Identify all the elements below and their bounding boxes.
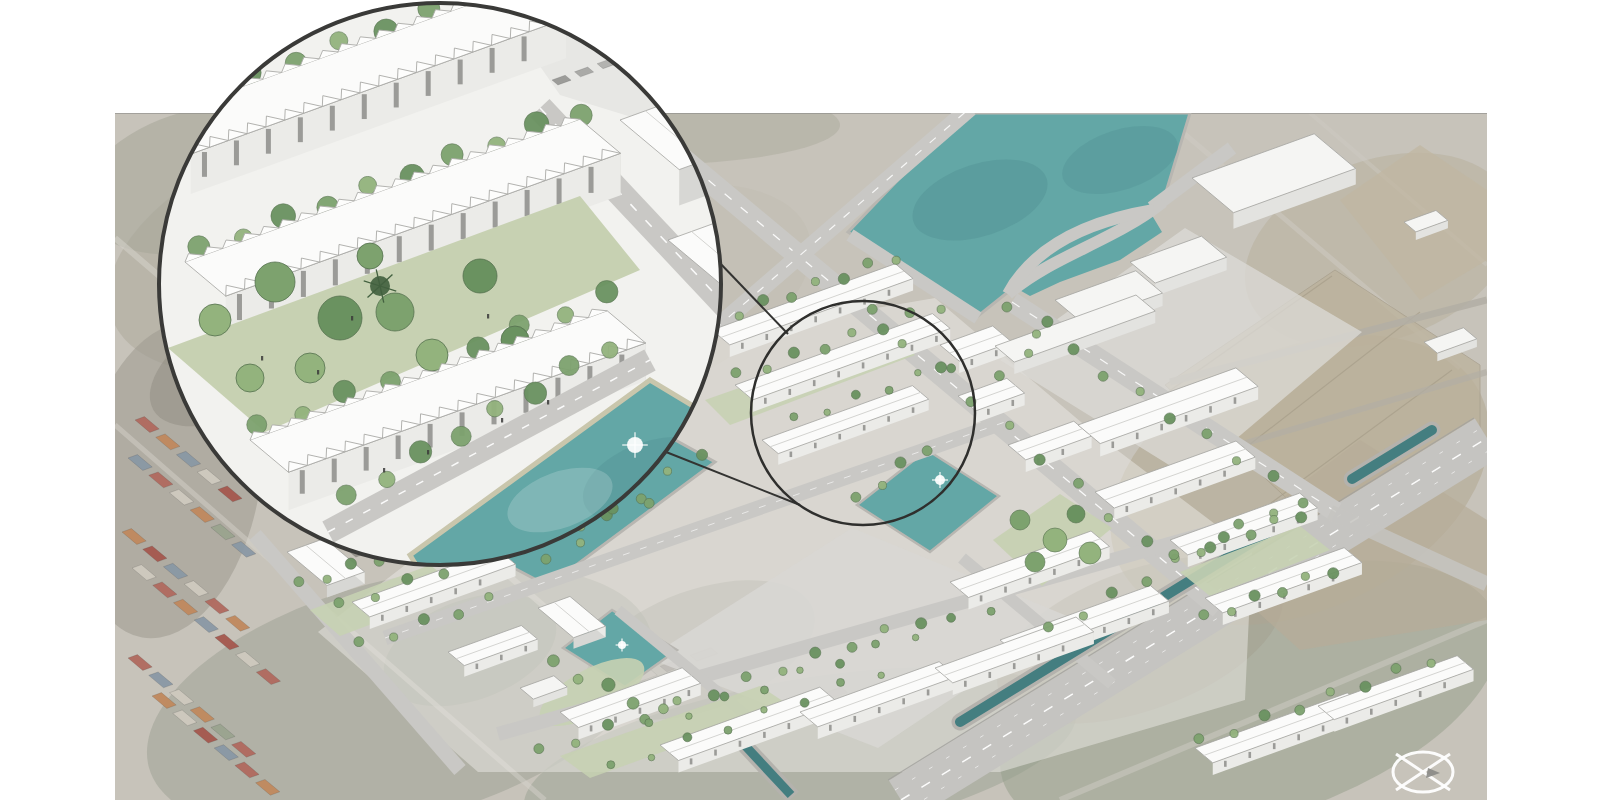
courtyard-tree [1079, 542, 1101, 564]
lens-courtyard-tree [357, 243, 383, 269]
lens-courtyard-tree [318, 296, 362, 340]
lens-courtyard-tree [199, 304, 231, 336]
courtyard-tree [1067, 505, 1085, 523]
courtyard-tree [1043, 528, 1067, 552]
lens-courtyard-tree [376, 293, 414, 331]
scene-svg [0, 0, 1600, 800]
lens-courtyard-tree [236, 364, 264, 392]
lens-courtyard-tree [255, 262, 295, 302]
courtyard-tree [1025, 552, 1045, 572]
lens-courtyard-tree [463, 259, 497, 293]
architectural-masterplan-rendering [0, 0, 1600, 800]
courtyard-tree [1010, 510, 1030, 530]
lens-courtyard-tree [295, 353, 325, 383]
